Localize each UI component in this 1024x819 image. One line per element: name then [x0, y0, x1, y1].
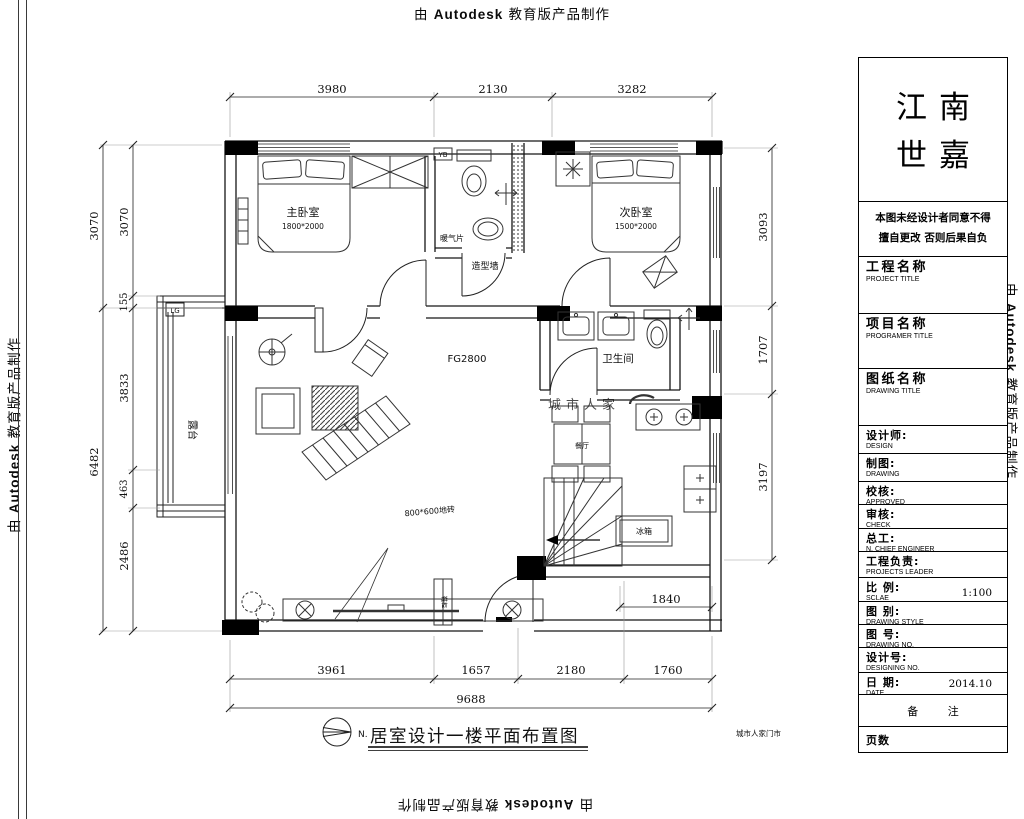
fridge-label: 冰箱 — [636, 526, 652, 536]
brand-line1: 江南 — [859, 84, 1007, 132]
dim-left-inner-1: 3070 — [117, 207, 131, 236]
terrace-label: 露台 — [186, 420, 199, 440]
living-room — [242, 334, 543, 625]
dining-label: 餐厅 — [575, 441, 589, 450]
dim-bottom-4: 1760 — [653, 663, 682, 677]
master-bed-size: 1800*2000 — [282, 222, 324, 231]
field-drawing-style: 图 别: DRAWING STYLE — [859, 601, 1007, 624]
field-drawing-title: 图纸名称 DRAWING TITLE — [859, 368, 1007, 425]
extension-lines — [100, 92, 778, 712]
dim-right-3: 3197 — [756, 462, 770, 491]
dim-top-3: 3282 — [617, 82, 646, 96]
brand-name: 江南 世嘉 — [859, 58, 1007, 201]
field-check: 审核: CHECK — [859, 504, 1007, 528]
dim-bottom-3: 2180 — [556, 663, 585, 677]
feature-wall-label: 造型墙 — [471, 260, 498, 272]
pages-row: 页数 — [859, 726, 1007, 754]
radiator-label: 暖气片 — [440, 233, 464, 243]
dim-top-1: 3980 — [317, 82, 346, 96]
winder-stairs — [544, 478, 622, 566]
field-projects-leader: 工程负责: PROJECTS LEADER — [859, 551, 1007, 577]
field-approved: 校核: APPROVED — [859, 481, 1007, 504]
drawing-title-footer: N. 居室设计一楼平面布置图 城市人家门市 — [323, 718, 781, 751]
dim-left-inner-3: 3833 — [117, 373, 131, 402]
cad-floor-plan-sheet: { "watermark": { "prefix": "由 ", "brand"… — [0, 0, 1024, 819]
stamp-center: 城市人家 — [548, 397, 620, 413]
dim-left-outer-1: 3070 — [87, 211, 101, 240]
stairs-arrow-icon — [546, 535, 558, 545]
title-block: 江南 世嘉 本图未经设计者同意不得 擅自更改 否则后果自负 工程名称 PROJE… — [858, 57, 1008, 753]
field-date: 日 期: DATE 2014.10 — [859, 672, 1007, 694]
field-scale: 比 例: SCLAE 1:100 — [859, 577, 1007, 601]
bathroom — [558, 308, 700, 348]
dim-top-2: 2130 — [478, 82, 507, 96]
kitchen-dining — [552, 395, 716, 546]
shoe-cabinet-label: 鞋柜 — [440, 596, 448, 608]
marker-yb: YB — [437, 151, 447, 159]
top-bathroom — [434, 148, 517, 240]
north-label: N. — [358, 730, 368, 740]
field-project-title: 工程名称 PROJECT TITLE — [859, 256, 1007, 313]
drawing-title: 居室设计一楼平面布置图 — [370, 727, 579, 747]
dim-kitchen: 1840 — [651, 592, 680, 606]
master-bedroom — [238, 156, 428, 252]
date-value: 2014.10 — [949, 678, 992, 690]
field-drawing-no: 图 号: DRAWING NO. — [859, 624, 1007, 647]
field-drawn-by: 制图: DRAWING — [859, 453, 1007, 481]
floor-tile-label: 800*600地砖 — [404, 504, 455, 518]
field-designer: 设计师: DESIGN — [859, 425, 1007, 453]
master-bedroom-label: 主卧室 — [287, 205, 320, 219]
ceiling-height-label: FG2800 — [448, 354, 487, 365]
brand-line2: 世嘉 — [859, 132, 1007, 180]
scale-value: 1:100 — [962, 587, 992, 599]
field-chief-engineer: 总工: N. CHIEF ENGINEER — [859, 528, 1007, 551]
north-compass-icon — [323, 718, 351, 746]
terrace — [157, 296, 225, 517]
dim-bottom-1: 3961 — [317, 663, 346, 677]
dim-right-1: 3093 — [756, 212, 770, 241]
dim-right-2: 1707 — [756, 335, 770, 364]
field-designing-no: 设计号: DESIGNING NO. — [859, 647, 1007, 672]
field-programer-title: 项目名称 PROGRAMER TITLE — [859, 313, 1007, 368]
dim-left-inner-5: 2486 — [117, 541, 131, 570]
second-bedroom-label: 次卧室 — [620, 205, 653, 219]
dim-bottom-2: 1657 — [461, 663, 490, 677]
dimension-lines — [99, 93, 776, 712]
copyright-notice: 本图未经设计者同意不得 擅自更改 否则后果自负 — [859, 201, 1007, 256]
dim-total: 9688 — [456, 692, 485, 706]
stamp-corner: 城市人家门市 — [736, 728, 781, 738]
dim-left-inner-2: 155 — [119, 292, 130, 311]
second-bedroom — [556, 152, 680, 288]
dim-left-outer-2: 6482 — [87, 447, 101, 476]
second-bed-size: 1500*2000 — [615, 222, 657, 231]
bathroom-label: 卫生间 — [602, 352, 634, 365]
remark-row: 备 注 — [859, 694, 1007, 726]
dim-left-inner-4: 463 — [119, 479, 130, 498]
